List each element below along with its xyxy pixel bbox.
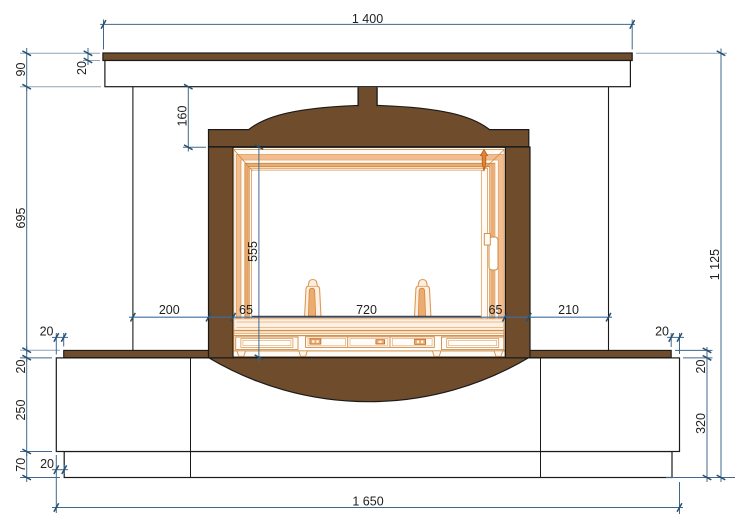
svg-text:20: 20 xyxy=(40,325,54,339)
svg-text:695: 695 xyxy=(14,208,28,229)
svg-text:65: 65 xyxy=(489,303,503,317)
svg-text:20: 20 xyxy=(75,61,89,75)
svg-text:20: 20 xyxy=(694,360,708,374)
svg-text:200: 200 xyxy=(159,303,180,317)
svg-text:1 400: 1 400 xyxy=(352,12,383,26)
svg-text:210: 210 xyxy=(558,303,579,317)
svg-text:20: 20 xyxy=(655,325,669,339)
svg-text:1 125: 1 125 xyxy=(708,249,722,280)
svg-text:65: 65 xyxy=(239,303,253,317)
svg-text:1 650: 1 650 xyxy=(352,494,383,508)
svg-text:70: 70 xyxy=(14,458,28,472)
svg-text:555: 555 xyxy=(246,241,260,262)
svg-text:160: 160 xyxy=(175,106,189,127)
svg-text:250: 250 xyxy=(14,400,28,421)
svg-text:720: 720 xyxy=(356,303,377,317)
svg-text:320: 320 xyxy=(694,413,708,434)
svg-text:90: 90 xyxy=(14,63,28,77)
svg-text:20: 20 xyxy=(40,457,54,471)
svg-text:20: 20 xyxy=(14,360,28,374)
